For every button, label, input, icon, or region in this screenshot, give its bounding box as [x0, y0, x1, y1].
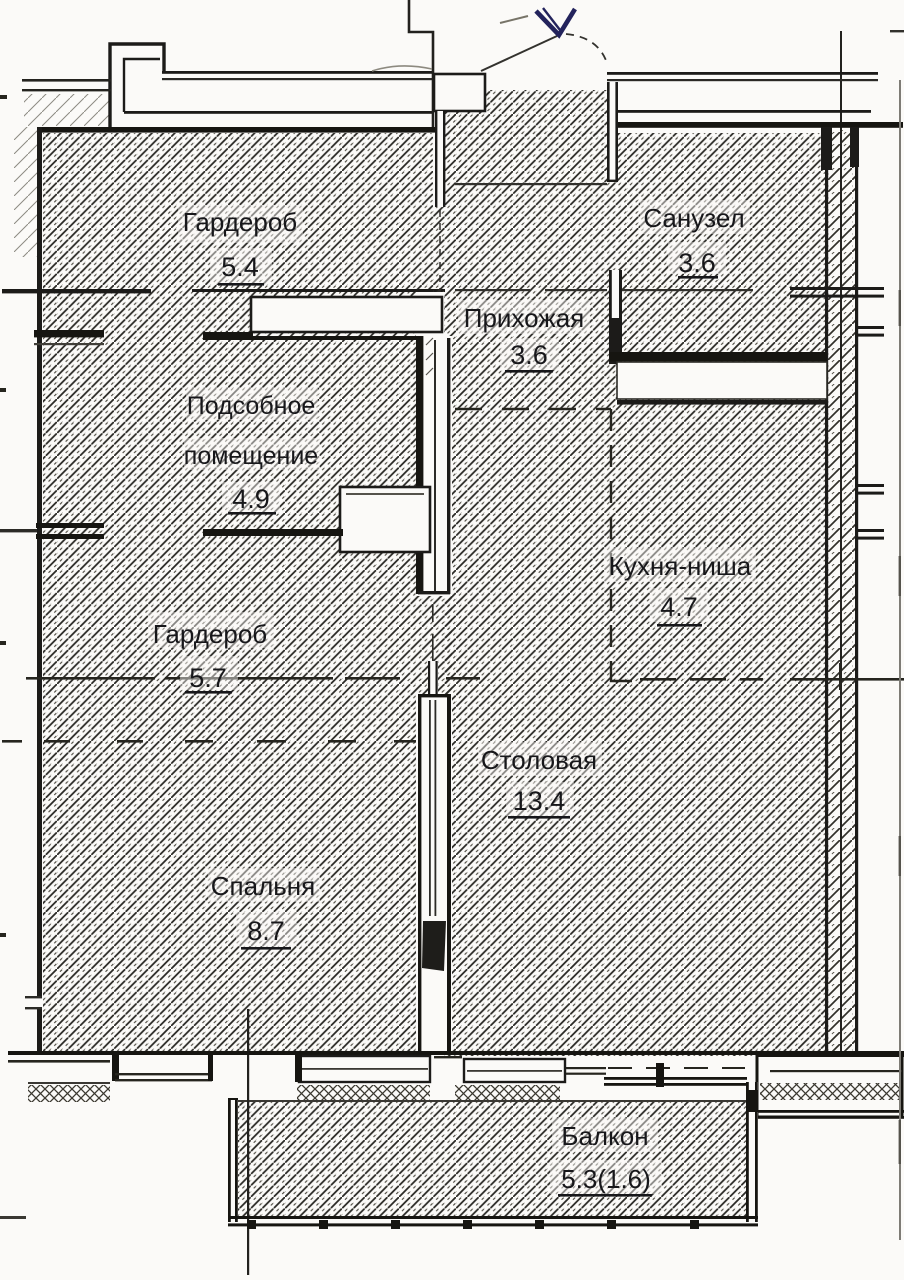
svg-text:Подсобное: Подсобное: [187, 392, 316, 420]
svg-text:3.6: 3.6: [678, 248, 716, 278]
svg-text:Спальня: Спальня: [211, 871, 315, 901]
svg-text:Балкон: Балкон: [561, 1121, 648, 1151]
svg-text:Гардероб: Гардероб: [153, 619, 267, 649]
svg-text:Прихожая: Прихожая: [464, 303, 584, 333]
svg-text:5.3(1.6): 5.3(1.6): [561, 1164, 651, 1194]
svg-text:Санузел: Санузел: [643, 203, 744, 233]
svg-text:4.9: 4.9: [232, 484, 270, 514]
svg-text:5.7: 5.7: [189, 663, 227, 693]
svg-text:Столовая: Столовая: [481, 745, 597, 775]
svg-text:13.4: 13.4: [513, 786, 566, 816]
svg-text:Гардероб: Гардероб: [183, 207, 297, 237]
svg-text:помещение: помещение: [184, 442, 318, 470]
svg-text:5.4: 5.4: [221, 252, 259, 282]
svg-text:3.6: 3.6: [510, 340, 548, 370]
svg-text:4.7: 4.7: [660, 592, 698, 622]
svg-text:Кухня-ниша: Кухня-ниша: [609, 551, 752, 581]
svg-text:8.7: 8.7: [247, 916, 285, 946]
